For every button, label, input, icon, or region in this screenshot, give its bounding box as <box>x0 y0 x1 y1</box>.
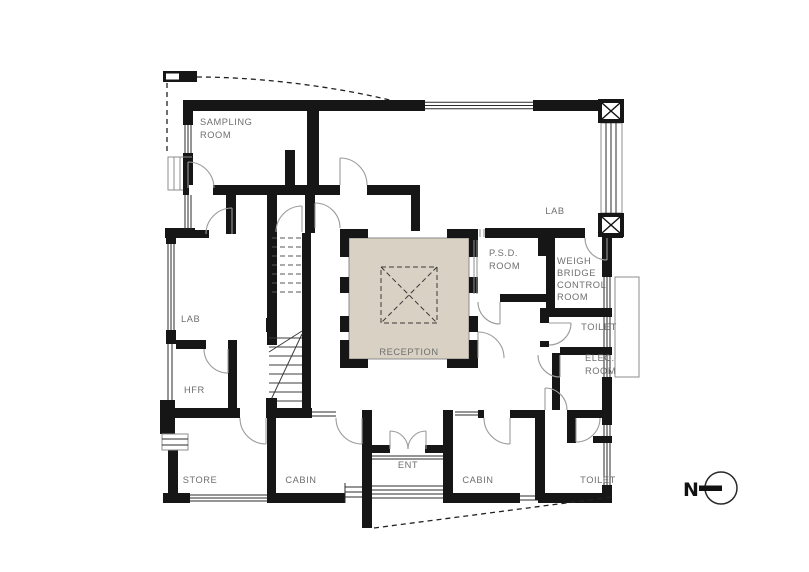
label-psd-1: P.S.D. <box>489 248 518 258</box>
floor-plan-drawing: SAMPLING ROOM LAB P.S.D. ROOM WEIGH BRID… <box>0 0 809 572</box>
side-steps <box>345 483 362 503</box>
label-ent: ENT <box>398 460 418 470</box>
label-toilet-bottom: TOILET <box>580 475 616 485</box>
label-weigh-bridge-2: BRIDGE <box>557 268 596 278</box>
label-lab-left: LAB <box>181 314 200 324</box>
reception-floor <box>349 238 469 359</box>
floor-plan-page: SAMPLING ROOM LAB P.S.D. ROOM WEIGH BRID… <box>0 0 809 572</box>
compass-needle <box>699 486 722 492</box>
label-elec-2: ROOM <box>585 366 616 376</box>
label-cabin-right: CABIN <box>462 475 493 485</box>
entry-steps <box>345 456 443 503</box>
label-store: STORE <box>183 475 218 485</box>
label-lab-top: LAB <box>545 206 564 216</box>
label-hfr: HFR <box>184 385 205 395</box>
column-mid-right <box>598 213 624 237</box>
label-weigh-bridge-1: WEIGH <box>557 256 591 266</box>
label-sampling-room-2: ROOM <box>200 130 231 140</box>
label-reception: RECEPTION <box>379 347 438 357</box>
north-compass: N <box>683 472 737 504</box>
stair-wall-stub <box>266 318 275 332</box>
label-sampling-room-1: SAMPLING <box>200 117 252 127</box>
label-elec-1: ELEC. <box>585 353 615 363</box>
north-label: N <box>683 479 699 501</box>
column-top-right <box>598 99 624 123</box>
label-weigh-bridge-3: CONTROL <box>557 280 606 290</box>
label-cabin-left: CABIN <box>285 475 316 485</box>
stair-wall-stub-lower <box>266 398 277 418</box>
label-weigh-bridge-4: ROOM <box>557 292 588 302</box>
label-psd-2: ROOM <box>489 261 520 271</box>
label-toilet-mid: TOILET <box>581 322 617 332</box>
